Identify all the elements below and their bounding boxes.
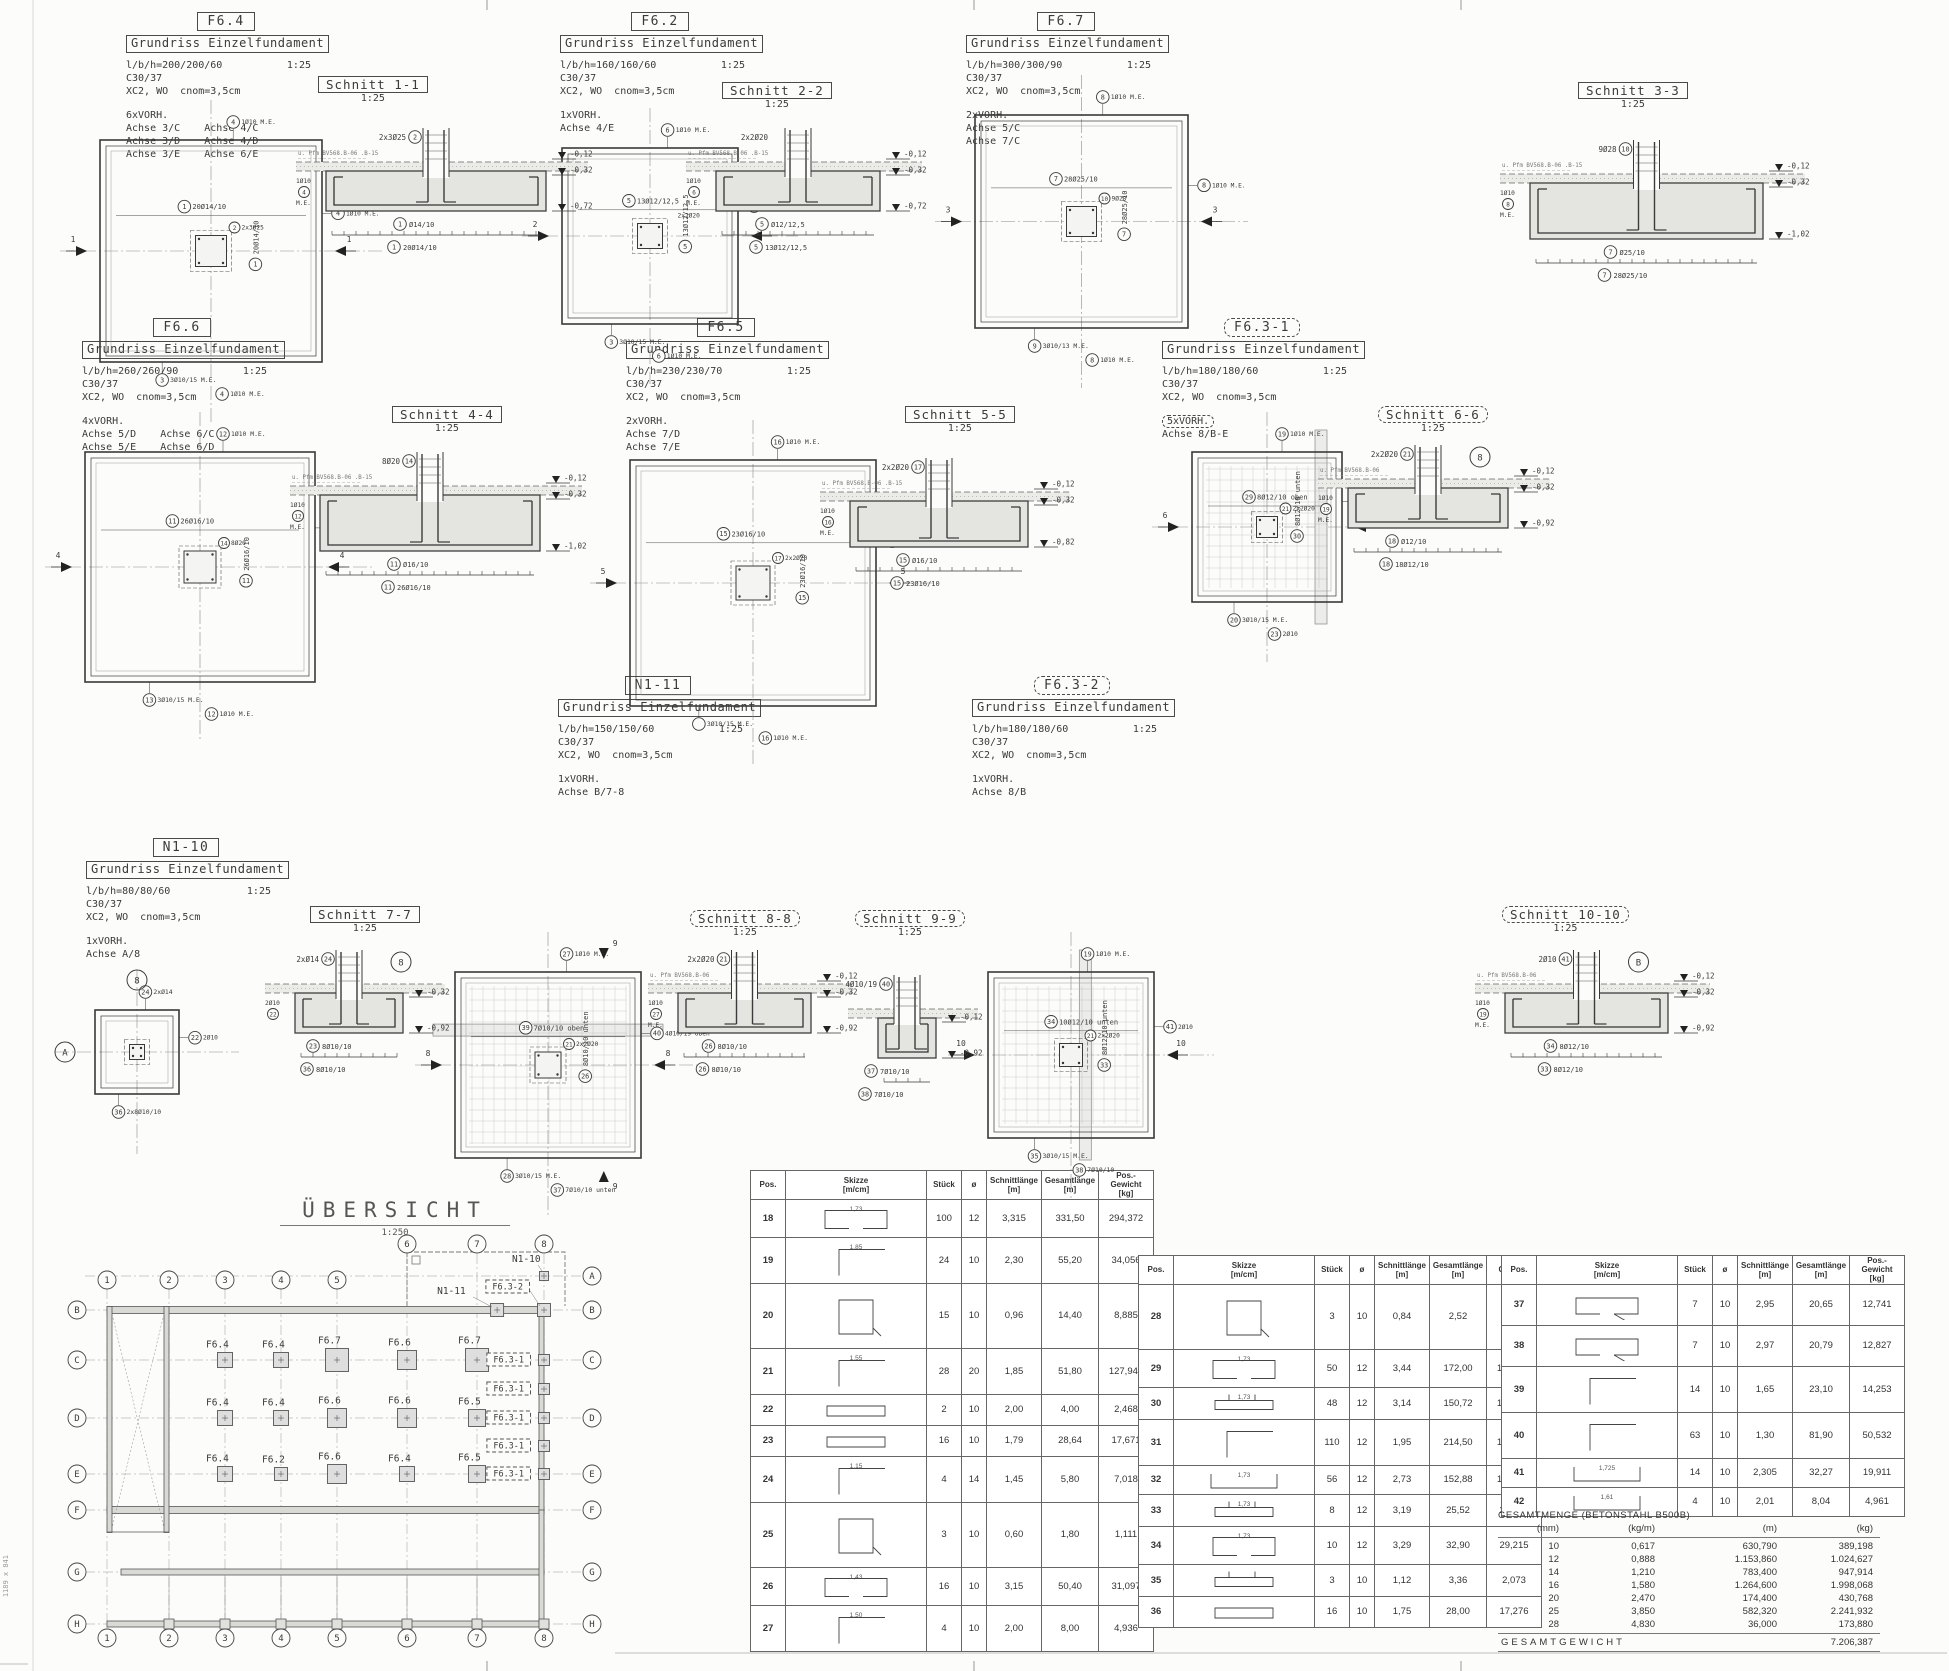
drawing-sheet: F6.4Grundriss Einzelfundamentl/b/h=200/2… (0, 0, 1949, 1671)
sheet-frame (0, 0, 1949, 1671)
